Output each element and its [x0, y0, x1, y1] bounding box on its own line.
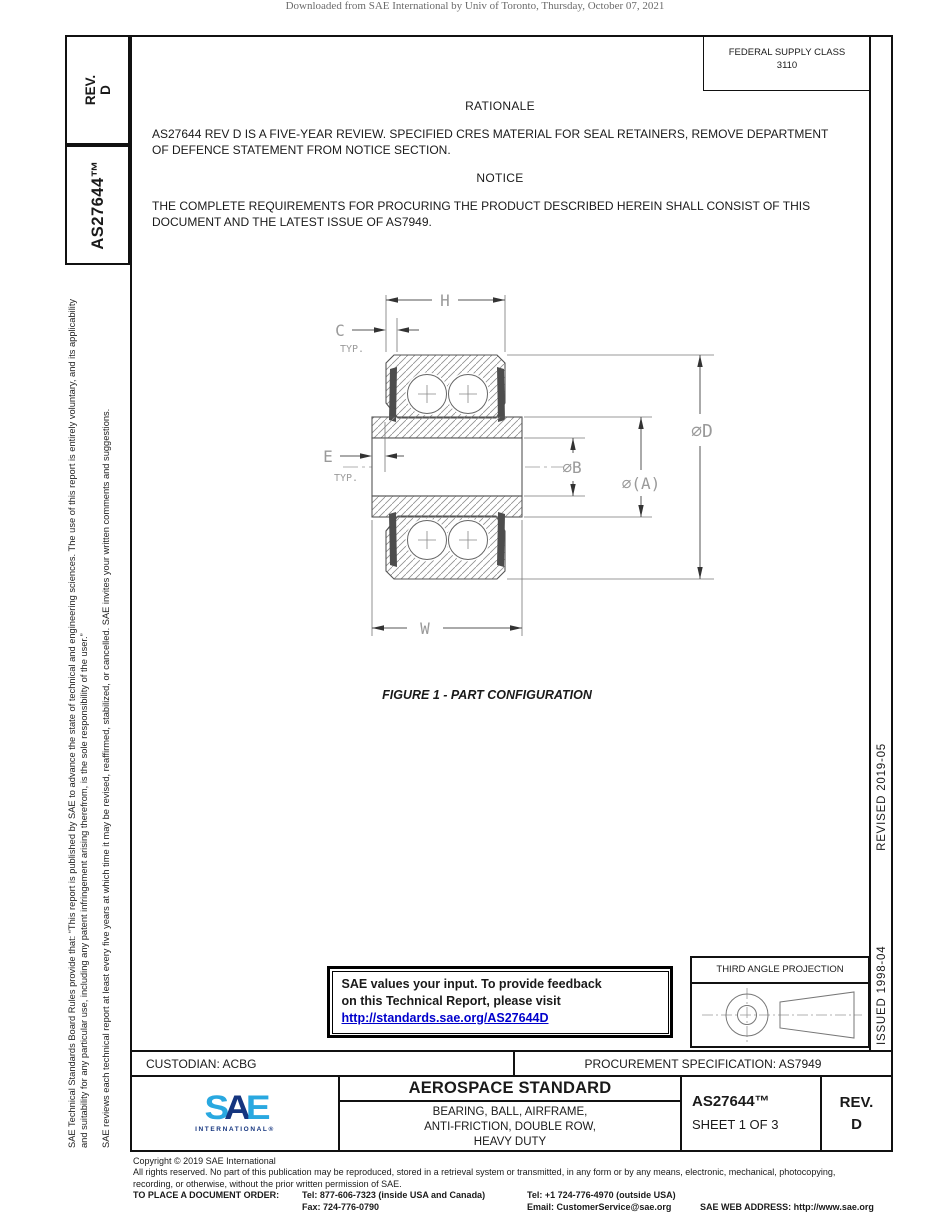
inner-ring-top-band [372, 417, 522, 438]
logo-letter-s: S [204, 1089, 224, 1127]
sidebar-docnumber-text: AS27644™ [70, 149, 126, 261]
rationale-body: AS27644 REV D IS A FIVE-YEAR REVIEW. SPE… [152, 127, 832, 158]
doc-number-cell: AS27644™ SHEET 1 OF 3 [682, 1077, 822, 1151]
arrowhead [570, 438, 575, 450]
disclaimer-paragraph-1: SAE Technical Standards Board Rules prov… [67, 284, 90, 1148]
arrowhead [386, 297, 398, 302]
sidebar-rev-box: REV. D [65, 35, 130, 145]
issued-date: ISSUED 1998-04 [876, 946, 888, 1045]
footer-fax: Fax: 724-776-0790 [302, 1202, 379, 1213]
logo-letter-a: A [224, 1089, 246, 1127]
sae-logo-subtitle: INTERNATIONAL® [195, 1126, 275, 1133]
dim-label-dia-a: ∅(A) [622, 474, 661, 493]
doc-title-line3: HEAVY DUTY [340, 1135, 680, 1150]
sae-logo-letters: SAE [204, 1094, 265, 1122]
sidebar-docnumber-box: AS27644™ [65, 145, 130, 265]
standard-type-heading: AEROSPACE STANDARD [340, 1077, 680, 1098]
rev-cell-value: D [851, 1116, 862, 1133]
procurement-cell: PROCUREMENT SPECIFICATION: AS7949 [515, 1052, 891, 1075]
federal-supply-class-box: FEDERAL SUPPLY CLASS 3110 [703, 35, 870, 91]
dim-label-e-typ: TYP. [334, 473, 358, 484]
rev-value: D [98, 85, 113, 95]
footer-rights-line2: recording, or otherwise, without the pri… [133, 1179, 402, 1190]
feedback-box: SAE values your input. To provide feedba… [327, 966, 673, 1038]
download-provenance-header: Downloaded from SAE International by Uni… [0, 0, 950, 12]
arrowhead [697, 567, 702, 579]
dim-label-h: H [440, 291, 450, 310]
arrowhead [570, 484, 575, 496]
arrowhead [374, 327, 386, 332]
seal-top-left [389, 367, 397, 422]
arrowhead [360, 453, 372, 458]
footer-web-address: SAE WEB ADDRESS: http://www.sae.org [700, 1202, 874, 1213]
arrowhead [397, 327, 409, 332]
feedback-line1: SAE values your input. To provide feedba… [342, 977, 602, 991]
title-cell: AEROSPACE STANDARD BEARING, BALL, AIRFRA… [340, 1077, 682, 1151]
sheet-number: SHEET 1 OF 3 [692, 1117, 820, 1132]
seal-bottom-right [497, 512, 505, 567]
feedback-line2: on this Technical Report, please visit [342, 994, 561, 1008]
notice-body: THE COMPLETE REQUIREMENTS FOR PROCURING … [152, 199, 866, 230]
notice-heading: NOTICE [130, 171, 870, 185]
seal-bottom-left [389, 512, 397, 567]
disclaimer-paragraph-2: SAE reviews each technical report at lea… [101, 284, 113, 1148]
arrowhead [697, 355, 702, 367]
doc-title-line1: BEARING, BALL, AIRFRAME, [340, 1105, 680, 1120]
dim-a-extension-lines [524, 417, 652, 517]
arrowhead [493, 297, 505, 302]
third-angle-projection-label: THIRD ANGLE PROJECTION [692, 958, 868, 984]
footer-tel-inside: Tel: 877-606-7323 (inside USA and Canada… [302, 1190, 485, 1201]
seal-top-right [497, 367, 505, 422]
document-page: Downloaded from SAE International by Uni… [0, 0, 950, 1230]
rev-cell: REV. D [822, 1077, 891, 1151]
custodian-row: CUSTODIAN: ACBG PROCUREMENT SPECIFICATIO… [130, 1050, 893, 1077]
revision-column-divider [869, 35, 871, 1050]
fsc-value: 3110 [704, 59, 870, 72]
doc-title-line2: ANTI-FRICTION, DOUBLE ROW, [340, 1120, 680, 1135]
rationale-heading: RATIONALE [130, 99, 870, 113]
arrowhead [638, 417, 643, 429]
bearing-cross-section-drawing: H C TYP. E TYP. ∅B ∅(A) ∅D [300, 285, 775, 647]
custodian-cell: CUSTODIAN: ACBG [132, 1052, 515, 1075]
footer-order-label: TO PLACE A DOCUMENT ORDER: [133, 1190, 279, 1201]
feedback-link[interactable]: http://standards.sae.org/AS27644D [342, 1011, 549, 1025]
revision-history-column: ISSUED 1998-04 REVISED 2019-05 [872, 743, 892, 1045]
footer-copyright: Copyright © 2019 SAE International [133, 1156, 276, 1167]
arrowhead [372, 625, 384, 630]
title-block: SAE INTERNATIONAL® AEROSPACE STANDARD BE… [130, 1075, 893, 1153]
sidebar-legal-disclaimer: SAE Technical Standards Board Rules prov… [67, 284, 129, 1148]
sae-logo: SAE INTERNATIONAL® [132, 1077, 340, 1151]
dim-label-e: E [323, 447, 333, 466]
rev-cell-label: REV. [840, 1094, 874, 1111]
feedback-box-inner: SAE values your input. To provide feedba… [332, 971, 669, 1034]
dim-label-dia-d: ∅D [691, 421, 713, 442]
third-angle-projection-symbol [692, 984, 868, 1046]
footer-rights-line1: All rights reserved. No part of this pub… [133, 1167, 835, 1178]
fsc-label: FEDERAL SUPPLY CLASS [704, 46, 870, 59]
figure-caption: FIGURE 1 - PART CONFIGURATION [306, 688, 668, 702]
dim-label-w: W [420, 619, 430, 638]
arrowhead [638, 505, 643, 517]
arrowhead [510, 625, 522, 630]
dim-label-dia-b: ∅B [562, 458, 581, 477]
doc-number: AS27644™ [692, 1093, 820, 1110]
revised-date: REVISED 2019-05 [876, 743, 888, 851]
dim-label-c-typ: TYP. [340, 344, 364, 355]
sidebar-rev-text: REV. D [70, 39, 126, 141]
logo-letter-e: E [246, 1089, 266, 1127]
rev-label: REV. [83, 75, 98, 105]
dim-label-c: C [335, 321, 345, 340]
footer-email: Email: CustomerService@sae.org [527, 1202, 671, 1213]
third-angle-projection-box: THIRD ANGLE PROJECTION [690, 956, 870, 1048]
bore [372, 438, 522, 496]
footer-tel-outside: Tel: +1 724-776-4970 (outside USA) [527, 1190, 676, 1201]
